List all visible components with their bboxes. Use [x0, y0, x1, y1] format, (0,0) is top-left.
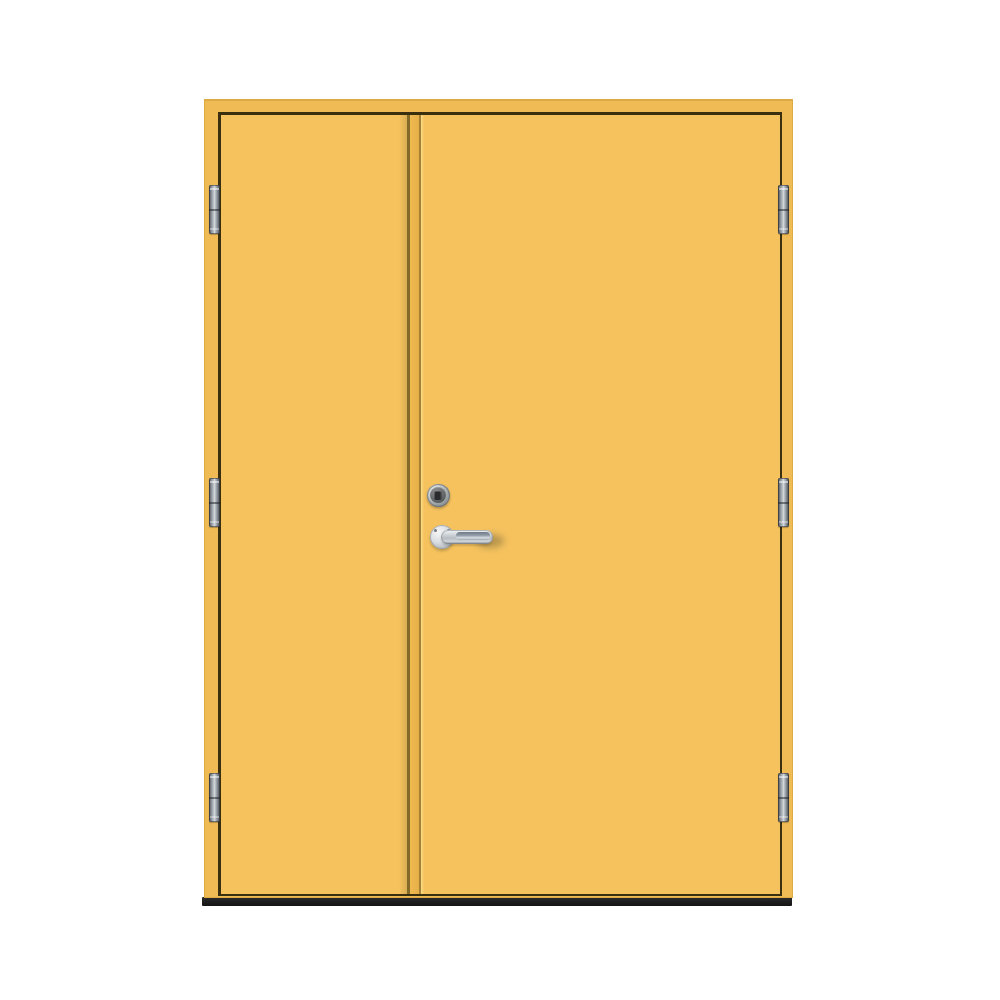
hinge-left — [209, 185, 220, 234]
lever-handle — [441, 530, 493, 544]
hinge-right — [778, 773, 789, 822]
leaf-divider-shadow — [399, 115, 408, 895]
lock-cylinder — [427, 484, 450, 507]
product-image-double-door — [0, 0, 1000, 1000]
lock-cylinder-face — [430, 487, 446, 503]
hinge-left — [209, 478, 220, 527]
door-threshold — [202, 897, 792, 906]
door-frame — [204, 99, 793, 898]
frame-rebate-gap — [218, 112, 782, 896]
hinge-right — [778, 185, 789, 234]
leaf-divider-astragal — [410, 115, 420, 895]
leaf-divider-highlight — [421, 115, 424, 895]
keyhole-icon — [435, 491, 442, 500]
hinge-right — [778, 478, 789, 527]
door-leaves — [221, 115, 780, 895]
hinge-left — [209, 773, 220, 822]
